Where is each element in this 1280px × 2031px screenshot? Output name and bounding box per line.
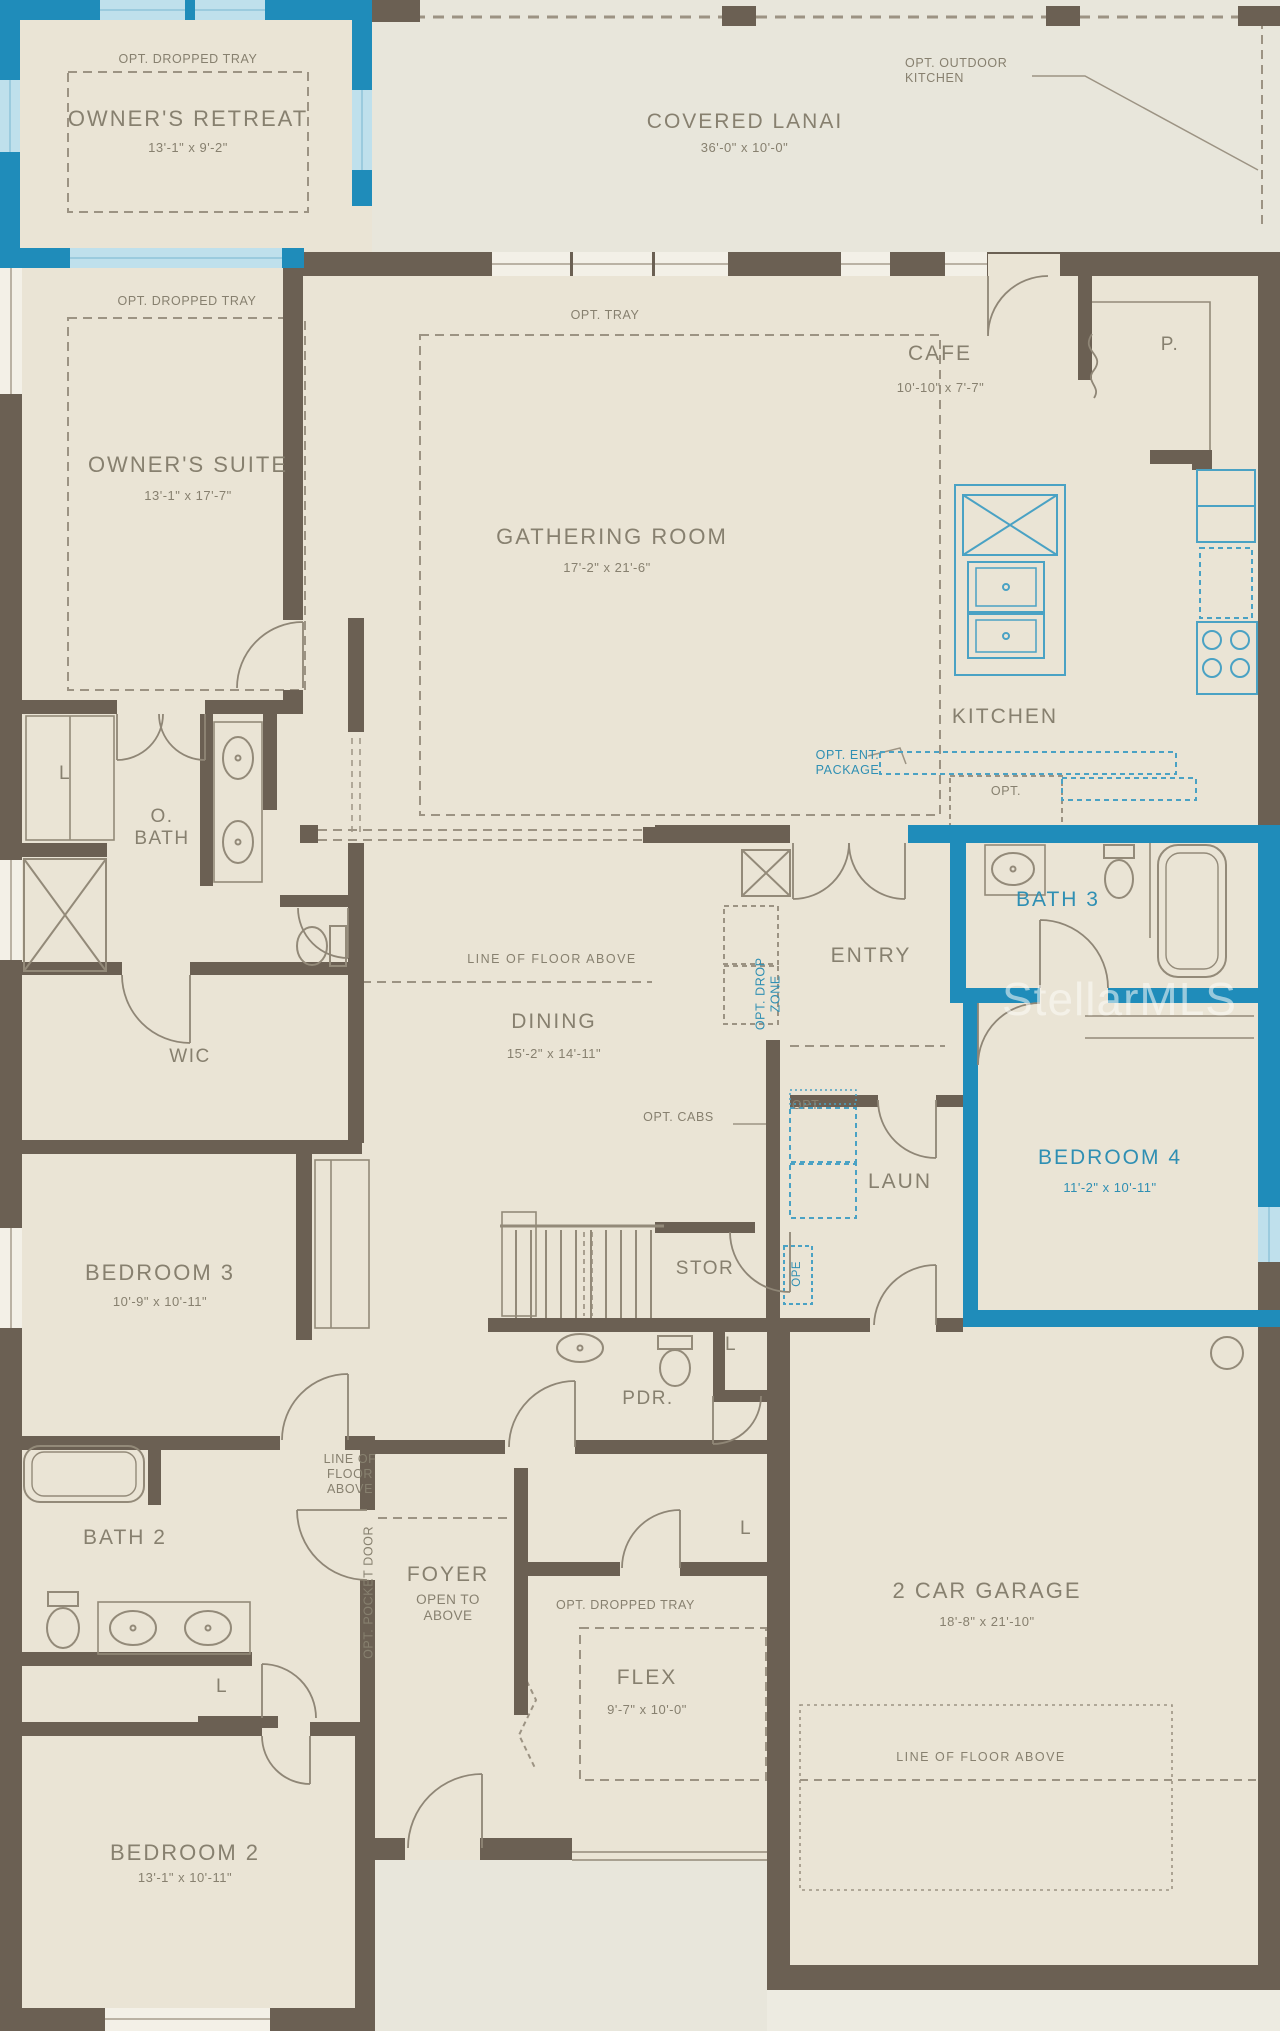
room-label-bath3: BATH 3	[1003, 888, 1113, 913]
floor-plan: OPT. DROPPED TRAY OWNER'S RETREAT 13'-1"…	[0, 0, 1280, 2031]
room-label-powder: PDR.	[600, 1388, 696, 1410]
linen-label-obath: L	[50, 763, 80, 785]
room-label-owners-retreat: OWNER'S RETREAT	[38, 106, 338, 132]
dining-floor-note: LINE OF FLOOR ABOVE	[437, 952, 667, 967]
opt-tray-label: OPT. TRAY	[535, 308, 675, 323]
suite-dims: 13'-1" x 17'-7"	[113, 488, 263, 503]
room-label-gathering-room: GATHERING ROOM	[462, 524, 762, 550]
room-label-bedroom4: BEDROOM 4	[1010, 1146, 1210, 1171]
room-label-owners-suite: OWNER'S SUITE	[38, 452, 338, 478]
flex-dims: 9'-7" x 10'-0"	[587, 1702, 707, 1717]
stellar-mls-watermark: StellarMLS	[1002, 972, 1280, 1026]
opt-ent-package-label: OPT. ENT. PACKAGE	[795, 748, 900, 778]
ope-label: OPE	[791, 1244, 805, 1304]
bedroom2-dims: 13'-1" x 10'-11"	[100, 1870, 270, 1885]
room-label-dining: DINING	[494, 1010, 614, 1035]
room-label-flex: FLEX	[587, 1666, 707, 1691]
gathering-dims: 17'-2" x 21'-6"	[492, 560, 722, 575]
room-label-covered-lanai: COVERED LANAI	[615, 110, 875, 135]
garage-dims: 18'-8" x 21'-10"	[907, 1614, 1067, 1629]
laundry-opt-label: OPT.	[783, 1098, 831, 1113]
cafe-dims: 10'-10" x 7'-7"	[858, 380, 1023, 395]
opt-outdoor-kitchen-label: OPT. OUTDOOR KITCHEN	[905, 56, 1045, 86]
room-label-bedroom3: BEDROOM 3	[60, 1260, 260, 1286]
room-label-entry: ENTRY	[821, 944, 921, 969]
suite-opt-label: OPT. DROPPED TRAY	[67, 294, 307, 309]
foyer-sub-label: OPEN TO ABOVE	[388, 1592, 508, 1624]
bedroom4-dims: 11'-2" x 10'-11"	[1020, 1180, 1200, 1195]
room-label-bedroom2: BEDROOM 2	[75, 1840, 295, 1866]
room-label-foyer: FOYER	[388, 1563, 508, 1588]
lanai-dims: 36'-0" x 10'-0"	[672, 140, 817, 155]
dining-dims: 15'-2" x 14'-11"	[464, 1046, 644, 1061]
foyer-floor-note: LINE OF FLOOR ABOVE	[310, 1452, 390, 1496]
room-label-bath2: BATH 2	[70, 1526, 180, 1551]
room-label-storage: STOR	[657, 1258, 753, 1280]
bedroom3-dims: 10'-9" x 10'-11"	[85, 1294, 235, 1309]
opt-cabs-label: OPT. CABS	[626, 1110, 731, 1125]
flex-opt-label: OPT. DROPPED TRAY	[548, 1598, 703, 1613]
room-label-pantry: P.	[1145, 334, 1195, 356]
garage-floor-note: LINE OF FLOOR ABOVE	[870, 1750, 1092, 1765]
room-label-laundry: LAUN	[852, 1170, 948, 1195]
retreat-dims: 13'-1" x 9'-2"	[103, 140, 273, 155]
room-label-cafe: CAFE	[880, 342, 1000, 367]
linen-label-bath2: L	[207, 1676, 237, 1698]
room-label-owners-bath: O. BATH	[127, 806, 197, 851]
room-label-wic: WIC	[145, 1046, 235, 1068]
room-label-kitchen: KITCHEN	[935, 705, 1075, 730]
opt-drop-zone-label: OPT. DROP ZONE	[753, 939, 783, 1049]
room-label-garage: 2 CAR GARAGE	[867, 1578, 1107, 1604]
opt-pocket-door-label: OPT. POCKET DOOR	[362, 1507, 377, 1677]
linen-label-garage-entry: L	[731, 1518, 761, 1540]
linen-label-powder: L	[716, 1334, 746, 1356]
retreat-opt-label: OPT. DROPPED TRAY	[70, 52, 306, 67]
kitchen-opt-label: OPT.	[950, 784, 1062, 799]
